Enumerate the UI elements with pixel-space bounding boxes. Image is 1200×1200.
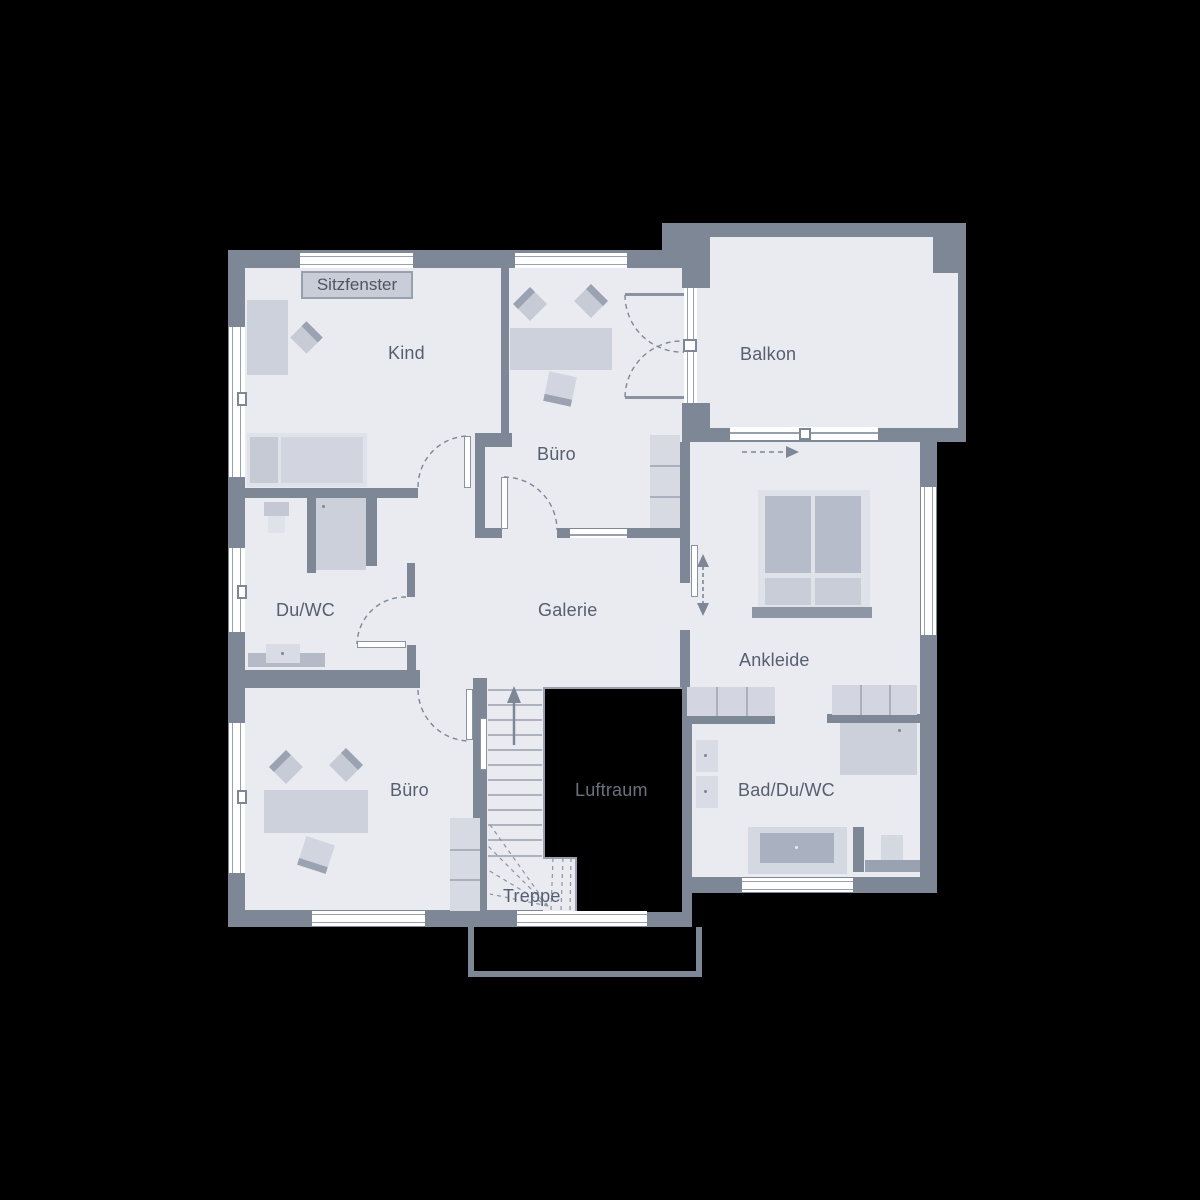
shower-head — [322, 505, 325, 508]
toilet-tank — [264, 502, 289, 516]
wardrobe — [247, 300, 288, 375]
bed — [247, 433, 367, 487]
wall-segment — [475, 433, 512, 447]
balcony-wall — [682, 403, 710, 428]
wall-segment — [228, 670, 420, 688]
french-door-leaf — [625, 293, 684, 296]
room-label-galerie: Galerie — [538, 600, 597, 621]
porch-outline — [468, 971, 702, 977]
door-leaf — [357, 641, 406, 648]
desk — [264, 790, 368, 833]
basin-drain — [281, 652, 284, 655]
wall-segment — [475, 528, 502, 538]
sitzfenster-callout: Sitzfenster — [301, 271, 413, 299]
window — [921, 487, 936, 635]
shower — [316, 498, 366, 570]
stair-handrail — [480, 718, 487, 770]
bath-shelf — [865, 860, 920, 872]
porch-outline — [468, 927, 474, 977]
balcony-wall — [662, 237, 682, 250]
toilet — [881, 835, 903, 860]
balcony-wall — [958, 237, 966, 428]
washbasin — [696, 740, 718, 772]
window — [300, 253, 413, 268]
room-label-treppe: Treppe — [503, 886, 561, 907]
toilet — [268, 516, 285, 533]
wall-segment — [366, 490, 377, 566]
wall-segment — [687, 716, 775, 724]
cabinet — [450, 818, 480, 911]
door-leaf — [501, 477, 508, 529]
door-leaf — [464, 436, 471, 488]
balcony-floor — [690, 237, 958, 428]
wall-segment — [307, 490, 316, 573]
wall-segment — [680, 630, 690, 687]
void-patch — [692, 893, 937, 927]
sliding-door-panel — [691, 545, 698, 597]
wall-segment — [680, 442, 690, 583]
bed-footboard — [752, 607, 872, 618]
window-handle — [237, 585, 247, 599]
room-label-du-wc: Du/WC — [276, 600, 335, 621]
desk — [510, 328, 612, 370]
wardrobe — [687, 687, 775, 716]
wall-segment — [827, 714, 920, 723]
room-label-luftraum: Luftraum — [575, 780, 648, 801]
balcony-wall — [662, 223, 933, 237]
sitzfenster-label: Sitzfenster — [317, 275, 397, 295]
wall-segment — [501, 268, 509, 433]
wall-segment — [475, 447, 485, 528]
washbasin — [696, 776, 718, 808]
window-handle — [237, 790, 247, 804]
wardrobe — [832, 685, 917, 715]
french-door-leaf — [625, 396, 684, 399]
wall-segment — [853, 827, 864, 872]
interior-glass — [570, 529, 627, 538]
window — [742, 878, 853, 892]
floor-plan: Sitzfenster Kind Büro Balkon Du/WC Galer… — [0, 0, 1200, 1200]
room-label-balkon: Balkon — [740, 344, 796, 365]
door-handle — [683, 339, 697, 352]
room-label-buero-top: Büro — [537, 444, 576, 465]
porch-outline — [696, 927, 702, 977]
room-label-bad-du-wc: Bad/Du/WC — [738, 780, 835, 801]
wall-segment — [407, 563, 415, 597]
shower-head — [898, 729, 901, 732]
window-handle — [237, 392, 247, 406]
window-handle — [799, 428, 811, 440]
room-label-kind: Kind — [388, 343, 425, 364]
window — [515, 253, 627, 268]
balcony-wall — [682, 237, 710, 288]
window — [517, 911, 647, 926]
basin-drain — [704, 790, 707, 793]
room-label-buero-bottom: Büro — [390, 780, 429, 801]
wall-segment — [228, 488, 418, 498]
bathtub — [748, 827, 847, 874]
bed — [758, 490, 870, 608]
window — [312, 911, 425, 926]
room-label-ankleide: Ankleide — [739, 650, 810, 671]
cabinet — [650, 435, 680, 528]
shower — [840, 723, 917, 775]
basin-drain — [704, 754, 707, 757]
door-leaf — [466, 689, 473, 740]
